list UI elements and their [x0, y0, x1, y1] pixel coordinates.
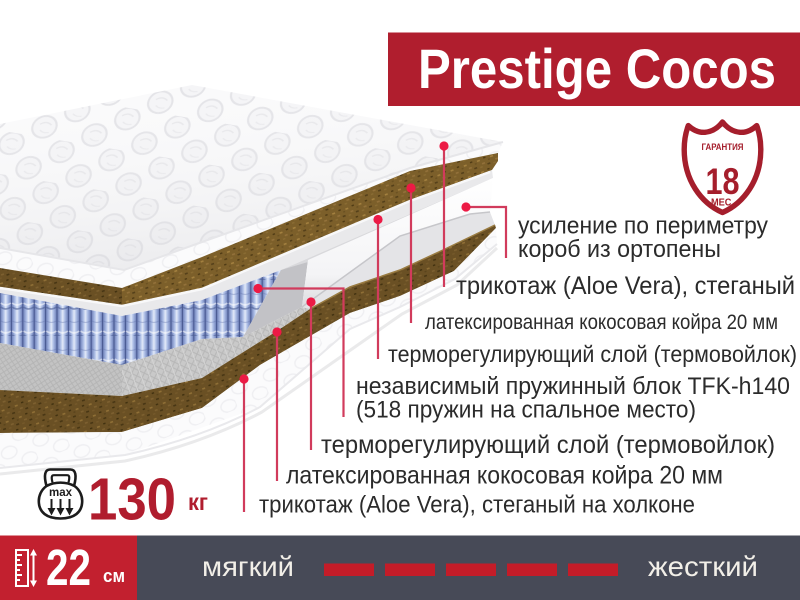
svg-text:кг: кг — [188, 489, 208, 515]
svg-text:мягкий: мягкий — [202, 551, 294, 582]
svg-text:терморегулирующий слой (термов: терморегулирующий слой (термовойлок) — [321, 431, 775, 459]
svg-text:трикотаж (Aloe Vera), стеганый: трикотаж (Aloe Vera), стеганый — [456, 272, 795, 300]
svg-text:жесткий: жесткий — [648, 551, 758, 582]
svg-text:латексированная кокосовая койр: латексированная кокосовая койра 20 мм — [425, 310, 778, 334]
svg-text:18: 18 — [706, 161, 740, 202]
svg-text:22: 22 — [46, 539, 91, 596]
svg-text:терморегулирующий слой (термов: терморегулирующий слой (термовойлок) — [388, 341, 797, 367]
svg-text:МЕС.: МЕС. — [711, 198, 734, 209]
svg-text:Prestige Cocos: Prestige Cocos — [418, 37, 776, 100]
svg-text:130: 130 — [88, 467, 176, 533]
svg-text:трикотаж (Aloe Vera), стеганый: трикотаж (Aloe Vera), стеганый на холкон… — [259, 492, 695, 519]
svg-text:см: см — [103, 566, 125, 586]
svg-text:ГАРАНТИЯ: ГАРАНТИЯ — [702, 142, 744, 152]
svg-text:короб из ортопены: короб из ортопены — [518, 236, 721, 263]
svg-text:(518 пружин на спальное место): (518 пружин на спальное место) — [356, 397, 696, 424]
svg-text:max: max — [49, 487, 73, 499]
svg-text:латексированная кокосовая койр: латексированная кокосовая койра 20 мм — [286, 462, 723, 490]
